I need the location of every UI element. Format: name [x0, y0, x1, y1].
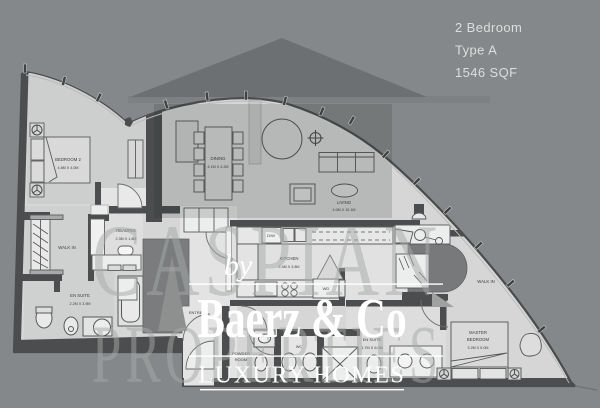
svg-text:3.2M X 5.0M: 3.2M X 5.0M [468, 346, 489, 350]
svg-text:BEDROOM: BEDROOM [467, 337, 490, 342]
svg-text:LUXURY HOMES: LUXURY HOMES [199, 363, 406, 389]
svg-text:1546 SQF: 1546 SQF [455, 65, 517, 80]
svg-text:BEDROOM 2: BEDROOM 2 [55, 157, 81, 162]
svg-text:Baerz & Co: Baerz & Co [197, 287, 406, 350]
svg-text:by: by [224, 249, 253, 282]
svg-text:WALK IN: WALK IN [58, 245, 76, 250]
svg-text:EN SUITE: EN SUITE [70, 293, 90, 298]
svg-text:4.8M X 4.0M: 4.8M X 4.0M [58, 166, 79, 170]
svg-text:2.2M X 3.9M: 2.2M X 3.9M [70, 302, 91, 306]
svg-text:Type A: Type A [455, 43, 497, 58]
svg-text:MASTER: MASTER [469, 330, 487, 335]
svg-text:WALK IN: WALK IN [477, 279, 495, 284]
svg-text:2 Bedroom: 2 Bedroom [455, 20, 522, 35]
